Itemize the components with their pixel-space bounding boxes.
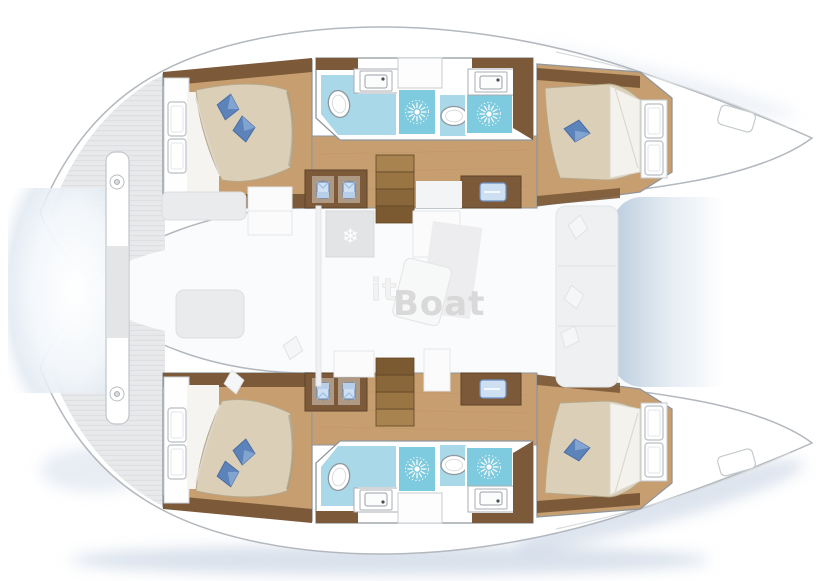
cockpit-bench xyxy=(162,192,246,220)
chart-seat xyxy=(334,351,374,377)
catamaran-floorplan: ❄ it Boat xyxy=(0,0,840,581)
cockpit-table xyxy=(176,290,244,338)
aft-cabin xyxy=(163,58,312,208)
wardrobe xyxy=(305,170,367,208)
hull-window xyxy=(168,102,186,136)
deck-fitting xyxy=(115,392,120,397)
forward-cabin xyxy=(537,64,672,206)
bath-top-cabinet xyxy=(316,58,358,70)
hull-stairs xyxy=(376,155,414,223)
crossbeam-center xyxy=(107,246,128,338)
toilet xyxy=(441,107,467,126)
floorplan-canvas: ❄ it Boat xyxy=(0,0,840,581)
bed-sheet xyxy=(610,86,640,178)
sink xyxy=(475,72,507,92)
galley-unit xyxy=(424,349,450,391)
watermark-part2: Boat xyxy=(393,284,485,324)
hull-window xyxy=(645,141,663,175)
deck-fitting xyxy=(115,180,120,185)
saloon-door-wall xyxy=(316,206,321,386)
stern-platform-glow xyxy=(8,188,116,393)
bow-trampoline xyxy=(612,197,792,387)
partition-wall xyxy=(513,60,533,140)
hull-window xyxy=(645,104,663,138)
sink xyxy=(360,71,392,91)
saloon-sofa xyxy=(556,206,618,387)
bathroom-block xyxy=(316,58,533,140)
fridge-snowflake-icon: ❄ xyxy=(342,224,359,248)
vanity-cabinet xyxy=(461,176,521,208)
stair-landing xyxy=(416,181,462,208)
stern-crossbeam xyxy=(106,152,129,424)
companionway-landing xyxy=(398,58,442,88)
hull-window xyxy=(168,139,186,173)
